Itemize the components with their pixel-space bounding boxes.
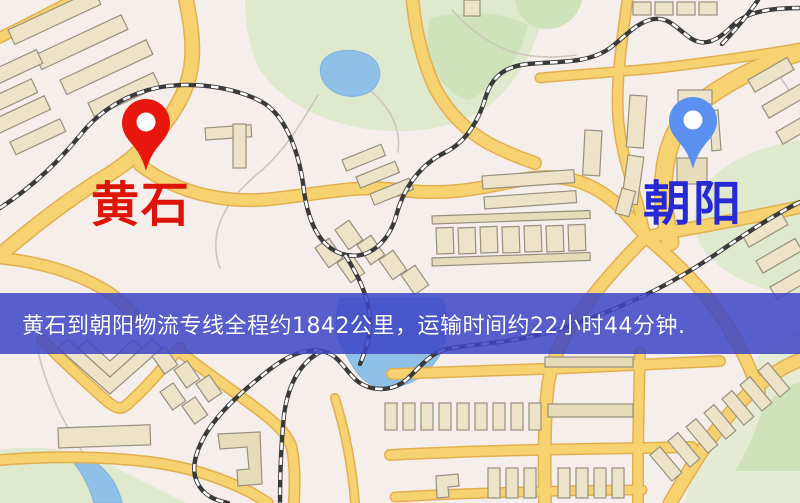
- origin-label: 黄石: [91, 177, 191, 233]
- map-canvas: 黄石 朝阳: [0, 0, 800, 503]
- destination-label: 朝阳: [643, 176, 743, 232]
- route-info-text: 黄石到朝阳物流专线全程约1842公里，运输时间约22小时44分钟.: [22, 308, 685, 340]
- logistics-route-map: 黄石 朝阳 黄石到朝阳物流专线全程约1842公里，运输时间约22小时44分钟.: [0, 0, 800, 503]
- route-info-banner: 黄石到朝阳物流专线全程约1842公里，运输时间约22小时44分钟.: [0, 293, 800, 354]
